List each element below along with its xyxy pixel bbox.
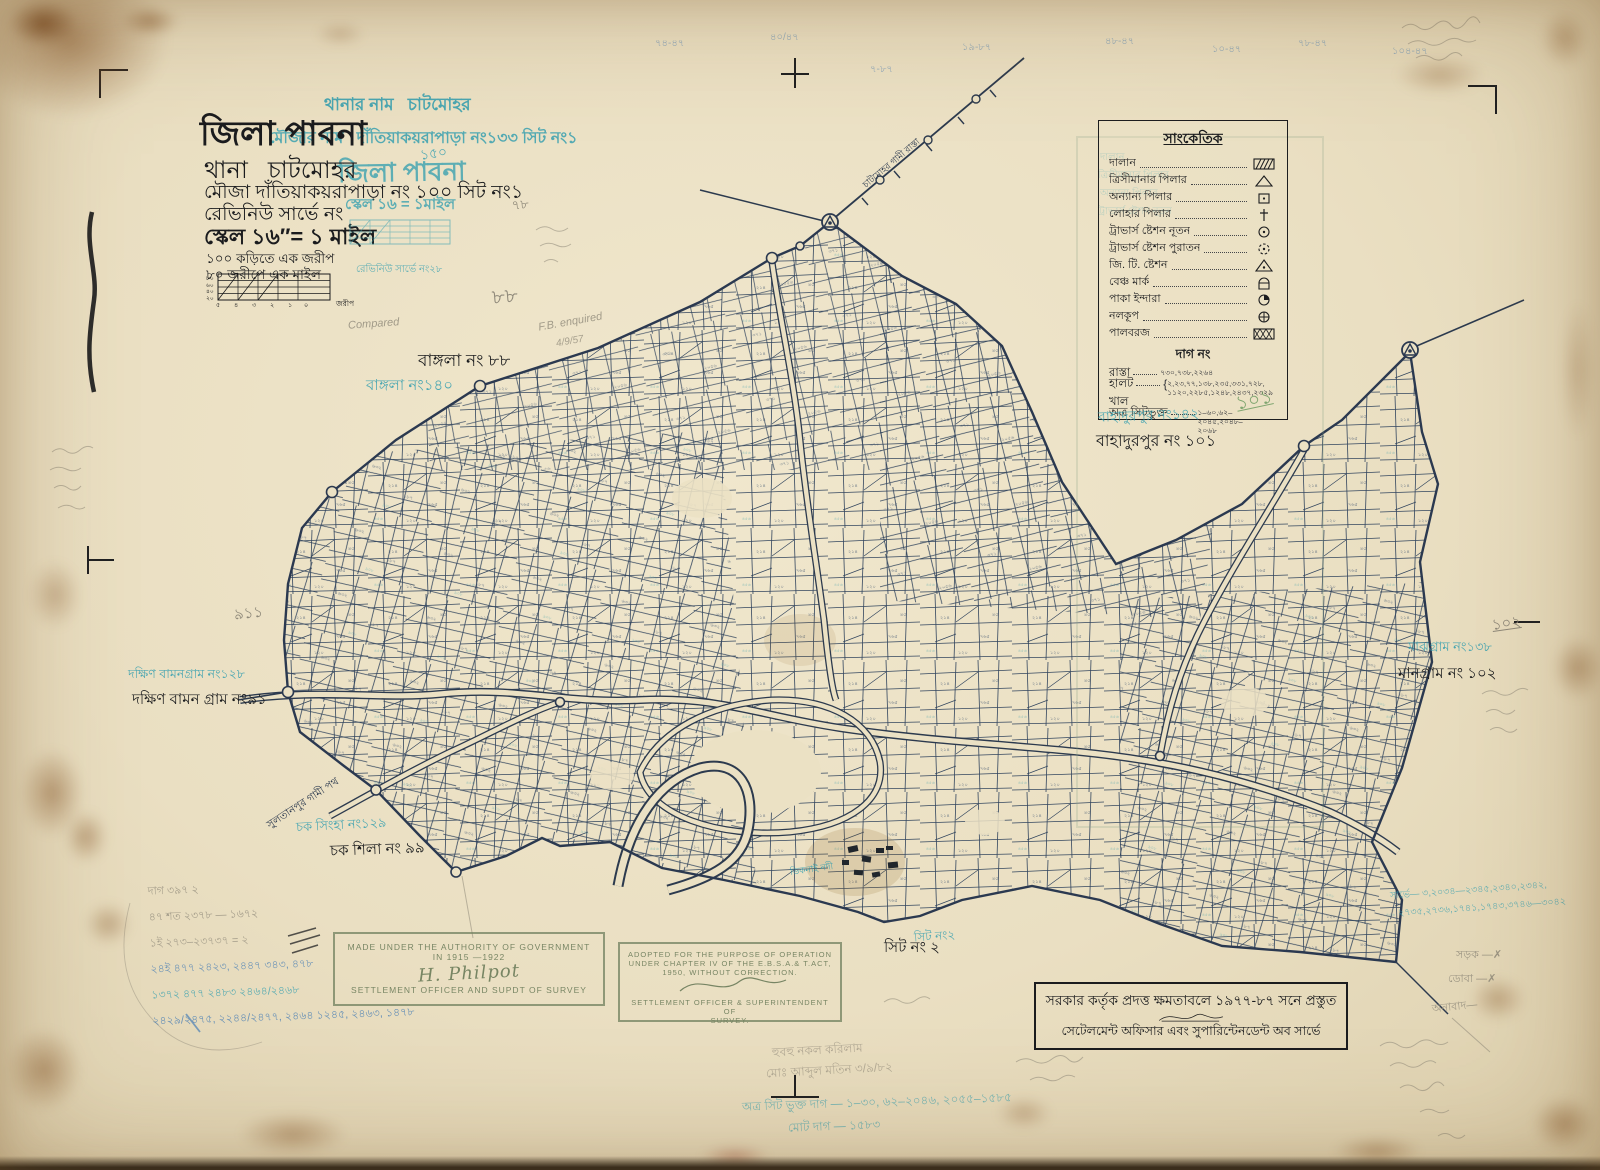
stain	[1395, 55, 1485, 95]
legend-label: ত্রিসীমানার পিলার	[1109, 172, 1187, 189]
circle-dot-icon	[1251, 225, 1277, 239]
label-dakshin-black: দক্ষিণ বামন গ্রাম নং৯১	[132, 688, 267, 713]
scale-diagram: ৮০ ৬০ ৪০ ২০ ৫ ৪ ৩ ২ ১ ০ জরীপ	[204, 272, 354, 313]
adopted-stamp: ADOPTED FOR THE PURPOSE OF OPERATION UND…	[618, 942, 842, 1022]
footer-signature-scrawl	[1136, 1013, 1246, 1023]
label-bangla-teal: বাঙ্গলা নং১৪০	[366, 374, 453, 399]
top-margin-number: ৭৮-৪৭	[1298, 36, 1327, 53]
stain	[6, 1028, 82, 1112]
label-ne-road: চাটমোহর গামী রাস্তা	[859, 135, 923, 192]
scanned-cadastral-map-sheet: ২১৪ ৭৬৫ ১২০ ৪৫ ৪৫৬ ৬৩২ ১৮৭ ৯০৮ ৩৭১ ২০৫৬	[0, 0, 1600, 1170]
officer-signature-scrawl	[670, 975, 790, 995]
benchmark-icon	[1251, 276, 1277, 290]
stain	[28, 560, 82, 630]
legend-item-building: দালান	[1109, 155, 1277, 172]
svg-text:৪০: ৪০	[206, 289, 214, 295]
legend-label: দালান	[1109, 155, 1136, 172]
stain	[8, 0, 78, 46]
legend-item-pucca-well: পাকা ইন্দারা	[1109, 291, 1277, 308]
halot-label: হালট	[1109, 379, 1133, 390]
svg-text:২০: ২০	[206, 296, 214, 302]
svg-text:০: ০	[304, 302, 308, 308]
boundary-spur-lines	[238, 190, 1524, 1014]
adopted-line4: SETTLEMENT OFFICER & SUPERINTENDENT OF	[624, 998, 836, 1016]
legend-label: জি. টি. ষ্টেশন	[1109, 257, 1168, 274]
building-hatch-icon	[1251, 157, 1277, 171]
svg-text:জরীপ: জরীপ	[335, 298, 354, 308]
officer-line: সেটেলমেন্ট অফিসার এবং সুপারিন্টেনডেন্ট অ…	[1062, 1023, 1321, 1043]
legend-label: ট্রাভার্স ষ্টেশন পুরাতন	[1109, 240, 1200, 257]
left-margin-corrections: দাগ ৩৯৭ ২ ৪৭ শত ২৩৭৮ — ১৬৭২ ১ই ২৭৩–২৩৭৩৭…	[147, 869, 415, 1034]
top-margin-number: ৭৪-৪৭	[655, 36, 684, 53]
triangle-dot-icon	[1251, 259, 1277, 273]
preparation-note-box: সরকার কর্তৃক প্রদত্ত ক্ষমতাবলে ১৯৭৭-৮৭ স…	[1034, 982, 1348, 1050]
stain	[315, 22, 365, 46]
legend-label: পাকা ইন্দারা	[1109, 291, 1161, 308]
stain	[1532, 1096, 1596, 1152]
label-bahadurpur-black: বাহাদুরপুর নং ১০১	[1096, 428, 1216, 455]
pencil-fb-note: F.B. enquired	[537, 310, 603, 333]
adopted-line2: UNDER CHAPTER IV OF THE E.B.S.A.& T.ACT,	[624, 959, 836, 968]
top-margin-number: ৭-৮৭	[870, 62, 893, 79]
right-margin-pencil-note-3: অনাবাদ—	[1431, 996, 1478, 1020]
svg-text:৮০: ৮০	[206, 276, 214, 282]
top-margin-number: ৪০/৪৭	[770, 30, 799, 47]
right-margin-pencil-note-1: সড়ক —✗	[1456, 946, 1502, 965]
triangle-icon	[1251, 174, 1277, 188]
legend-item-traverse-old: ট্রাভার্স ষ্টেশন পুরাতন	[1109, 240, 1277, 257]
label-majhgram-teal: মাঝগ্রাম নং১৩৮	[1408, 638, 1492, 659]
legend-box: সাংকেতিক দালান ত্রিসীমানার পিলার অন্যান্…	[1098, 120, 1288, 420]
label-bangla-black: বাঙ্গলা নং ৮৮	[418, 348, 510, 376]
label-chak-teal: চক সিংহা নং১২৯	[296, 814, 387, 840]
legend-label: ট্রাভার্স ষ্টেশন নূতন	[1109, 223, 1190, 240]
crosshatch-rect-icon	[1251, 327, 1277, 341]
adopted-line5: SURVEY.	[624, 1016, 836, 1025]
legend-item-other-pillar: অন্যান্য পিলার	[1109, 189, 1277, 206]
label-bahadurpur-teal: বাহাদুরপুর নং১৪২	[1098, 402, 1200, 430]
svg-text:১: ১	[288, 302, 292, 308]
top-margin-number: ১০৪-৪৭	[1392, 44, 1428, 61]
dagger-icon	[1251, 208, 1277, 222]
legend-item-iron-pillar: লোহার পিলার	[1109, 206, 1277, 223]
svg-text:৫: ৫	[216, 302, 220, 308]
pencil-note-911: ৯১১	[233, 601, 265, 629]
fold-bracket	[89, 212, 94, 392]
stain	[1552, 636, 1600, 700]
scan-edge-shadow	[0, 1156, 1600, 1170]
pencil-fb-date: 4/9/57	[555, 334, 584, 350]
legend-label: নলকূপ	[1109, 308, 1139, 325]
bottom-teal-note-2: মোট দাগ — ১৫৮৩	[788, 1116, 881, 1139]
legend-label: লোহার পিলার	[1109, 206, 1171, 223]
legend-item-tubewell: নলকূপ	[1109, 308, 1277, 325]
stain	[84, 902, 132, 946]
label-sheet2-teal: সিট নং২	[913, 927, 956, 950]
stain	[238, 1112, 348, 1156]
legend-label: অন্যান্য পিলার	[1109, 189, 1172, 206]
railway-line	[832, 58, 1024, 220]
stain	[64, 810, 108, 864]
svg-text:৪: ৪	[234, 302, 238, 308]
legend-item-traverse-new: ট্রাভার্স ষ্টেশন নূতন	[1109, 223, 1277, 240]
svg-text:২: ২	[270, 302, 274, 308]
legend-item-tri-boundary-pillar: ত্রিসীমানার পিলার	[1109, 172, 1277, 189]
adopted-line1: ADOPTED FOR THE PURPOSE OF OPERATION	[624, 950, 836, 959]
thana-name-value: চাটমোহর	[408, 95, 471, 114]
dashed-circle-dot-icon	[1251, 242, 1277, 256]
label-dakshin-teal: দক্ষিণ বামনগ্রাম নং১২৮	[128, 666, 245, 686]
legend-row-rasta: রাস্তা ৭৩০,৭৩৮,২২৬৪	[1109, 368, 1277, 379]
label-chak-black: চক শিলা নং ৯৯	[330, 836, 425, 864]
mouza-name-value: দাঁতিয়াকয়রাপাড়া নং১৩৩ সিট নং১	[357, 130, 578, 147]
pencil-revenue-number: ৭৮	[511, 195, 530, 218]
circle-cross-icon	[1251, 310, 1277, 324]
legend-item-palborj: পালবরজ	[1109, 325, 1277, 342]
stain	[20, 748, 84, 838]
legend-label: বেঞ্চ মার্ক	[1109, 274, 1149, 291]
legend-label: পালবরজ	[1109, 325, 1150, 342]
building-blocks	[842, 845, 898, 878]
teal-revenue-overlay: রেভিনিউ সার্ভে নং২৮	[356, 262, 442, 279]
square-dot-icon	[1251, 191, 1277, 205]
legend-item-gt-station: জি. টি. ষ্টেশন	[1109, 257, 1277, 274]
dag-heading: দাগ নং	[1109, 346, 1277, 366]
pencil-note-102: ১০২	[1490, 610, 1522, 639]
quarter-circle-icon	[1251, 293, 1277, 307]
preparation-line: সরকার কর্তৃক প্রদত্ত ক্ষমতাবলে ১৯৭৭-৮৭ স…	[1046, 989, 1337, 1013]
legend-title: সাংকেতিক	[1109, 127, 1277, 151]
right-margin-pencil-note-2: ডোবা —✗	[1448, 970, 1496, 989]
stain	[120, 6, 180, 36]
label-river: ডিকনাই নদী	[789, 859, 834, 880]
top-margin-number: ১০-৪৭	[1212, 42, 1241, 59]
teal-ghost-scale-diagram	[348, 216, 456, 255]
stain	[1540, 8, 1590, 68]
label-mangram-black: মানগ্রাম নং ১০২	[1398, 662, 1497, 687]
legend-item-benchmark: বেঞ্চ মার্ক	[1109, 274, 1277, 291]
stain	[0, 0, 170, 120]
top-margin-number: ৪৮-৪৭	[1105, 34, 1134, 51]
top-margin-number: ১৯-৮৭	[962, 40, 991, 57]
pencil-note-88: ৮৮	[491, 281, 520, 316]
teal-number-150: ১৫০	[418, 140, 448, 168]
stain	[1560, 300, 1596, 440]
teal-scale-overlay: স্কেল ১৬ = ১মাইল	[345, 193, 455, 218]
svg-text:৩: ৩	[252, 302, 257, 308]
rasta-numbers: ৭৩০,৭৩৮,২২৬৪	[1160, 368, 1213, 377]
pencil-compared-note: Compared	[348, 316, 400, 332]
bottom-teal-note-1: অত্র সিট ভুক্ত দাগ — ১–৩০, ৬২–২০৪৬, ২০৫৫…	[742, 1089, 1012, 1118]
